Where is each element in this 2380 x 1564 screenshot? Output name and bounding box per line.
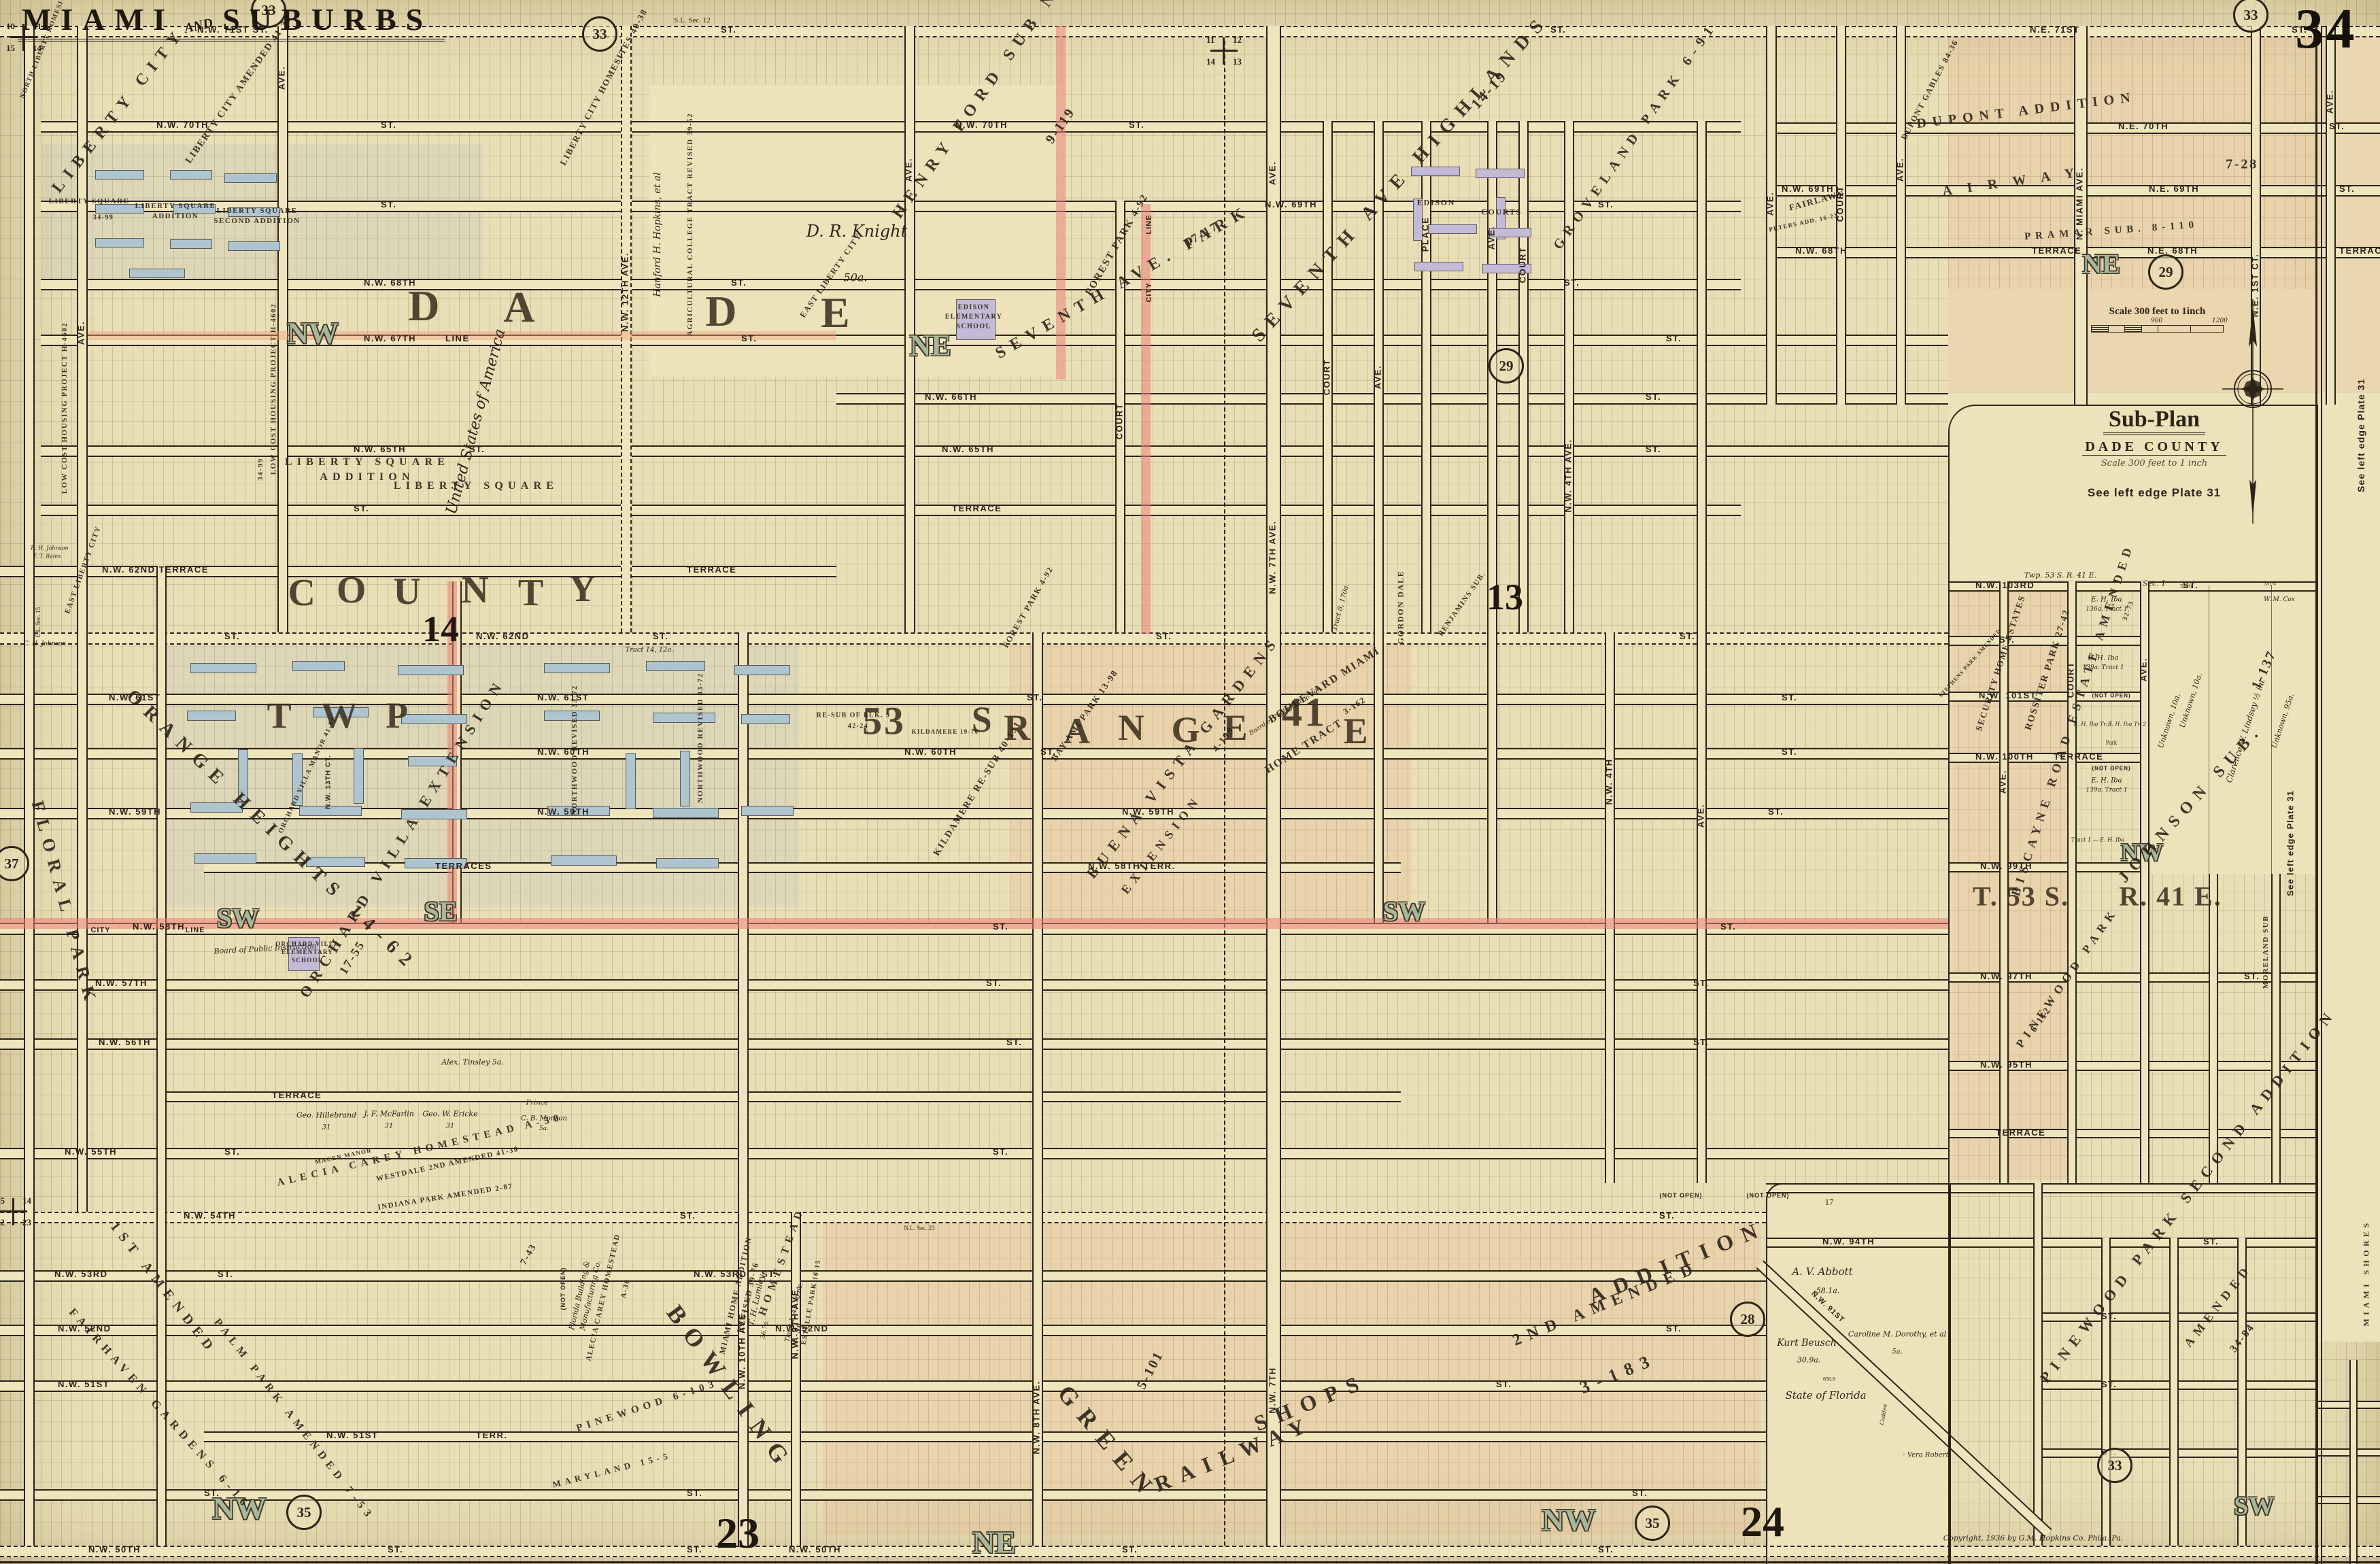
street-label: ST. <box>1564 277 1580 288</box>
street-label: ST. <box>1659 1210 1675 1221</box>
street <box>1605 632 1615 1183</box>
street-label: ST. <box>2101 1379 2117 1389</box>
street-label: TERRACE <box>1996 1127 2045 1138</box>
street <box>2315 1496 2380 1504</box>
section-letter: D <box>705 286 738 337</box>
subplan-county: DADE COUNTY <box>2082 439 2226 456</box>
street-label: ST. <box>731 277 747 288</box>
street-label: N.E. 71ST <box>2030 24 2079 35</box>
street-label: N.W. 61ST <box>537 692 589 702</box>
map-label: 30.9a. <box>1797 1356 1821 1365</box>
building-block <box>741 806 794 816</box>
map-label: J. F. McFarlin <box>364 1110 414 1119</box>
street <box>24 26 35 1546</box>
section-letter: 24 <box>1741 1497 1784 1547</box>
map-label: Hanford H. Hopkins, et al <box>652 172 663 296</box>
building-block <box>680 751 690 806</box>
street-label: N.W. 65TH <box>354 444 406 454</box>
building-block <box>170 239 212 249</box>
street-label: ST. <box>1782 692 1797 702</box>
street-label: ST. <box>721 24 736 35</box>
map-label: (NOT OPEN) <box>1747 1192 1790 1199</box>
street <box>1766 185 2380 197</box>
street-label: AVE. <box>1268 129 1278 218</box>
subplan-see-note: See left edge Plate 31 <box>2082 486 2226 500</box>
compass-rose-icon <box>2222 299 2283 527</box>
street-label: N.W. 51ST <box>326 1430 378 1440</box>
section-letter: NE <box>2082 248 2120 280</box>
map-label: ELEMENTARY <box>945 313 1003 321</box>
street <box>2349 1360 2358 1564</box>
street-label: AVE. <box>2139 626 2149 714</box>
map-label: 50a. <box>844 271 868 284</box>
sheet-border <box>2315 26 2317 1564</box>
street-label: COURT <box>1321 333 1331 422</box>
map-label: 17 <box>1825 1197 1834 1208</box>
section-letter: NE <box>972 1525 1016 1561</box>
section-letter: 23 <box>716 1508 760 1559</box>
map-label: CITY <box>1145 282 1153 302</box>
street-label: N.W. 103RD <box>1975 580 2035 590</box>
map-label: C. H. Johnson <box>24 641 66 647</box>
map-label: Park <box>2106 739 2118 746</box>
street-label: N.W. 70TH <box>156 120 209 130</box>
map-label: See left edge Plate 31 <box>2285 790 2296 896</box>
district-tint <box>1010 636 1411 921</box>
street-label: TERRACE <box>687 564 736 575</box>
street-label: N.W. 54TH <box>184 1210 236 1221</box>
map-label: Caroline M. Dorothy, et al <box>1848 1330 1946 1339</box>
section-letter: E <box>821 288 852 338</box>
street-label: ST. <box>354 503 369 513</box>
street-label: ST. <box>1646 392 1661 402</box>
map-label: Sec. 1 <box>2143 579 2166 588</box>
map-label: CITY <box>90 926 110 934</box>
map-label: 34-99 <box>256 458 265 480</box>
map-label: LIBERTY SQUARE <box>49 197 130 205</box>
map-label: E. H. Iba Tr. 2 <box>2107 721 2146 728</box>
map-label: 331¾ <box>2180 583 2192 590</box>
map-label: N.W. 13TH CT. <box>325 755 333 809</box>
section-letter: Y <box>568 567 598 611</box>
street <box>41 121 1741 133</box>
map-label: EDISON <box>958 304 990 311</box>
building-block <box>129 269 185 278</box>
street-label: ST. <box>741 333 757 343</box>
street-label: TERRACE <box>2339 245 2380 256</box>
plate-reference-circle: 29 <box>2148 254 2183 290</box>
street-label: ST. <box>1129 120 1144 130</box>
city-line <box>0 918 1948 929</box>
section-letter: T <box>267 694 294 736</box>
street-label: ST. <box>1782 747 1797 757</box>
street-label: N.W. 4TH AVE. <box>1563 432 1573 520</box>
plate-reference-circle: 33 <box>2097 1448 2132 1483</box>
map-label: MORELAND SUB <box>2262 915 2270 989</box>
building-block <box>354 748 364 804</box>
map-label: State of Florida <box>1785 1389 1866 1401</box>
street-label: ST. <box>653 631 668 641</box>
building-block <box>398 665 464 675</box>
title-miami: MIAMI <box>22 1 175 37</box>
building-block <box>224 173 277 183</box>
section-number: 23 <box>22 1217 31 1228</box>
street-label: N.W. 60TH <box>904 747 957 757</box>
street-label: ST. <box>2203 1236 2219 1246</box>
street-label: COURT <box>1114 377 1124 466</box>
map-label: · Vera Robert <box>1903 1452 1948 1459</box>
street-label: ST. <box>1693 1037 1709 1047</box>
street <box>41 445 1948 457</box>
map-label: Kurt Beusch <box>1777 1338 1837 1348</box>
section-letter: O <box>337 568 368 612</box>
street-label: ST. <box>381 199 396 209</box>
section-letter: N <box>1118 707 1146 749</box>
street <box>0 979 1948 991</box>
map-label: Twp. 53 S. R. 41 E. <box>2024 571 2096 580</box>
street-label: ST. <box>388 1544 403 1554</box>
map-label: 650.8 <box>1823 1376 1835 1382</box>
street-label: ST. <box>1680 631 1695 641</box>
street <box>2315 1448 2380 1457</box>
map-label: S.L. Sec. 12 <box>674 16 710 24</box>
building-block <box>1428 224 1477 234</box>
street-label: ST. <box>993 1146 1008 1157</box>
section-number: 12 <box>1233 35 1242 46</box>
building-block <box>551 855 617 866</box>
map-label: (NOT OPEN) <box>2092 693 2130 699</box>
street <box>2315 1401 2380 1409</box>
street-label: ST. <box>1156 631 1172 641</box>
street-label: ST. <box>1027 692 1042 702</box>
street-label: N.W. 51ST <box>58 1379 109 1389</box>
street <box>1896 26 1906 405</box>
map-label: Alex. Tinsley 5a. <box>441 1058 504 1067</box>
building-block <box>187 711 236 721</box>
map-label: Geo. W. Ericke <box>422 1110 477 1119</box>
map-label: RE-SUB OF BLK. 9 <box>817 712 891 719</box>
map-label: LINE <box>1145 214 1153 234</box>
street-label: AVE. <box>2324 58 2334 146</box>
street <box>0 1148 1948 1159</box>
street <box>836 393 1948 405</box>
street <box>0 632 1948 645</box>
street <box>0 1038 1948 1050</box>
street-label: ST. <box>1666 1323 1682 1333</box>
building-block <box>734 665 790 675</box>
map-label: NORTHWOOD REVISED 33-72 <box>696 673 704 803</box>
street-label: TERRACE <box>952 503 1002 513</box>
street <box>1697 121 1707 1183</box>
map-label: AGRICULTURAL COLLEGE TRACT REVISED 39-52 <box>686 113 694 337</box>
street <box>1224 41 1225 1546</box>
street-label: ST. <box>2339 184 2355 194</box>
plate-reference-circle: 29 <box>1489 348 1524 384</box>
map-label: SCHOOL <box>292 957 323 964</box>
map-label: COURTS <box>1481 207 1522 218</box>
map-label: See left edge Plate 31 <box>2356 378 2366 492</box>
street-label: N.W. 7TH AVE. <box>1268 513 1278 602</box>
street-label: N.W. 97TH <box>1980 971 2033 981</box>
section-letter: SW <box>1383 896 1425 928</box>
street-label: ST. <box>1666 333 1682 343</box>
street-label: N.E. 69TH <box>2149 184 2199 194</box>
map-label: 331¾ <box>2264 581 2276 587</box>
building-block <box>95 170 144 180</box>
section-letter: T <box>518 571 545 615</box>
plate-reference-circle: 35 <box>286 1495 322 1530</box>
street-label: ST. <box>1496 1379 1512 1389</box>
map-label: SECOND ADDITION <box>214 217 300 225</box>
building-block <box>401 714 467 724</box>
street <box>0 1212 1766 1223</box>
street-label: ST. <box>1720 921 1736 932</box>
street <box>1564 121 1574 632</box>
map-label: 139a. Tract 1 <box>2086 787 2127 794</box>
street-label: N.W. 62ND TERRACE <box>102 564 209 575</box>
section-letter: NW <box>287 316 339 351</box>
street-label: N.W. 8TH AVE. <box>1032 1374 1042 1462</box>
map-label: T. T. Bales <box>33 554 61 560</box>
section-number: 22 <box>0 1217 5 1228</box>
street-label: N.W. 50TH <box>88 1544 141 1554</box>
street-label: ST. <box>1693 978 1709 988</box>
section-number: 14 <box>1206 56 1215 67</box>
building-block <box>228 241 280 251</box>
street-label: N.W. 50TH <box>789 1544 841 1554</box>
map-label: LIBERTY SQUARE <box>217 207 298 215</box>
section-letter: N <box>461 568 490 612</box>
map-label: ADDITION <box>152 212 199 220</box>
street-label: N.E. 70TH <box>2118 121 2169 131</box>
building-block <box>190 663 256 673</box>
building-block <box>170 170 212 180</box>
section-letter: 13 <box>1486 576 1523 618</box>
street-label: N.W. 60TH <box>537 747 590 757</box>
building-block <box>292 661 345 671</box>
street-label: N.W. 66TH <box>925 392 977 402</box>
building-block <box>741 714 790 724</box>
map-label: N.L. Sec. 23 <box>904 1225 934 1231</box>
street <box>41 505 1741 516</box>
street-label: ST. <box>1006 1037 1022 1047</box>
map-label: A. V. Abbott <box>1792 1265 1852 1278</box>
map-label: Copyright, 1936 by G.M. Hopkins Co. Phil… <box>1943 1534 2124 1543</box>
street <box>1374 121 1384 923</box>
map-label: (NOT OPEN) <box>2092 766 2130 772</box>
street-label: N.W. 56TH <box>99 1037 151 1047</box>
section-letter: SW <box>2234 1491 2274 1521</box>
street-label: ST. <box>224 631 240 641</box>
street-label: N.W. 59TH <box>537 806 590 817</box>
section-number: 11 <box>1206 35 1214 46</box>
street <box>204 1431 1766 1442</box>
page-title: MIAMI AND SUBURBS <box>18 1 445 41</box>
title-and: AND <box>183 16 214 37</box>
section-letter: NW <box>1542 1502 1595 1538</box>
street-label: N.W. 94TH <box>1822 1236 1875 1246</box>
street-label: N.W. 58TH <box>133 921 185 932</box>
subplan-title: Sub-Plan <box>2103 407 2205 435</box>
map-label: 7-28 <box>2226 157 2258 173</box>
section-corner-marker: 11121413 <box>1202 29 1246 73</box>
street-label: ST. <box>993 921 1008 932</box>
building-block <box>646 661 705 671</box>
atlas-sheet: MIAMI AND SUBURBS 34 Scale 300 feet to 1… <box>0 0 2380 1564</box>
street-label: N.W. 95TH <box>1980 1059 2033 1070</box>
map-label: (NOT OPEN) <box>560 1268 566 1310</box>
section-letter: NE <box>909 328 951 363</box>
building-block <box>194 853 256 864</box>
street-label: N.W. 57TH <box>95 978 148 988</box>
street-label: AVE. <box>1372 333 1382 422</box>
section-number: 14 <box>22 1195 31 1206</box>
map-label: 5a. <box>1892 1348 1903 1356</box>
street <box>791 1212 801 1546</box>
section-number: 15 <box>0 1195 5 1206</box>
street-label: N.W. 62ND <box>476 631 530 641</box>
street-label: N.E. 68TH <box>2147 245 2198 256</box>
map-label: 31 <box>322 1124 331 1132</box>
subplan-scale-note: Scale 300 feet to 1 inch <box>2082 458 2226 469</box>
map-label: KILDAMERE 19-70 <box>912 728 979 735</box>
street-label: ST. <box>1646 444 1661 454</box>
street-label: COURT <box>1517 221 1527 309</box>
map-label: SCHOOL <box>956 323 991 330</box>
plate-reference-circle: 28 <box>1730 1302 1765 1337</box>
map-label: (NOT OPEN) <box>1660 1192 1703 1199</box>
street-label: ST. <box>687 1488 702 1498</box>
street-label: ST. <box>1632 1488 1648 1498</box>
street-label: TERR. <box>476 1430 508 1440</box>
map-label: EDISON <box>1417 198 1455 208</box>
map-label: Prince <box>526 1100 549 1107</box>
building-block <box>626 753 636 809</box>
street-label: N.W. 55TH <box>65 1146 117 1157</box>
building-block <box>653 808 719 818</box>
street-label: AVE. <box>76 289 86 377</box>
map-label: NORTHWOOD REVISED 33-72 <box>571 685 579 815</box>
street-label: AVE. <box>1998 738 2008 826</box>
section-number: 13 <box>1233 56 1242 67</box>
section-letter: D <box>408 281 441 331</box>
corner-cross-line <box>0 1210 27 1212</box>
section-letter: R. 41 E. <box>2119 881 2222 913</box>
section-number: 14 <box>33 43 41 54</box>
street-label: ST. <box>1768 806 1784 817</box>
street-label: N.W. 53RD <box>54 1269 108 1279</box>
building-block <box>653 713 715 723</box>
map-label: ELEMENTARY <box>282 949 333 955</box>
map-label: ORCHARD VILLA <box>275 940 339 947</box>
map-label: E. H. Iba <box>2091 777 2122 785</box>
map-label: GORDON DALE <box>1396 571 1406 645</box>
building-block <box>656 858 719 868</box>
map-label: LINE <box>185 926 205 934</box>
plate-reference-circle: 35 <box>1635 1506 1670 1541</box>
street-label: AVE. <box>1695 772 1705 860</box>
scale-bar-rule <box>2091 325 2224 333</box>
subplan-title-block: Sub-Plan DADE COUNTY Scale 300 feet to 1… <box>2082 407 2226 500</box>
map-label: LIBERTY SQUARE <box>394 480 558 492</box>
map-label: D. R. Knight <box>806 222 908 241</box>
section-corner-marker: 15142223 <box>0 1190 35 1234</box>
map-label: E. H. Johnson <box>31 545 68 551</box>
street-label: ST. <box>1598 199 1614 209</box>
map-label: E.L. Sec. 15 <box>35 607 41 637</box>
street-label: COURT <box>1835 160 1845 248</box>
street <box>1766 122 2380 134</box>
section-letter: P <box>386 694 410 736</box>
map-label: 31 <box>446 1123 455 1130</box>
street-label: ST. <box>381 120 396 130</box>
sheet-border <box>2321 26 2322 1564</box>
street-label: N.W. 65TH <box>942 444 994 454</box>
map-label: Tract 14, 12a. <box>625 647 673 654</box>
map-label: LOW COST HOUSING PROJECT H-4602 <box>269 303 277 475</box>
plate-number: 34 <box>2295 0 2357 62</box>
section-number: 15 <box>6 43 15 54</box>
map-label: W. M. Cox <box>2264 596 2295 603</box>
street <box>1266 26 1281 1546</box>
map-label: Geo. Hillebrand <box>296 1111 356 1120</box>
section-letter: 14 <box>422 608 459 650</box>
map-label: 42-24 <box>848 723 868 730</box>
sheet-border <box>0 1561 2380 1563</box>
building-block <box>95 238 144 248</box>
corner-cross-line <box>1210 50 1238 52</box>
map-label: LIBERTY SQUARE <box>285 456 449 469</box>
section-letter: A <box>503 282 537 333</box>
street-label: TERRACES <box>435 861 492 871</box>
scale-bar-label: Scale 300 feet to 1inch <box>2091 306 2224 318</box>
street-label: ST. <box>1122 1544 1138 1554</box>
street-label: AVE. <box>1765 160 1775 248</box>
section-number: 10 <box>6 21 15 32</box>
street-label: N.W. 67TH <box>364 333 416 343</box>
street-label: ST. <box>680 1210 696 1221</box>
street-label: N.W. 59TH <box>109 806 161 817</box>
plate-reference-circle: 33 <box>582 16 617 52</box>
scale-tick-900: 900 <box>2151 318 2162 324</box>
street-label: ST. <box>986 978 1002 988</box>
street-label: N.W. 4TH <box>1603 738 1614 826</box>
street-label: LINE <box>445 333 470 343</box>
street-label: ST. <box>2244 971 2260 981</box>
street-label: ST. <box>687 1544 702 1554</box>
street <box>0 1270 1766 1282</box>
street <box>0 1325 1766 1336</box>
building-block <box>544 663 610 673</box>
section-letter: U <box>393 570 422 613</box>
map-label: LOW COST HOUSING PROJECT H-4602 <box>61 322 69 494</box>
street-label: ST. <box>1598 1544 1614 1554</box>
section-letter: C <box>288 571 317 615</box>
street-label: AVE. <box>277 34 287 122</box>
map-label: Tract 1 — E. H. Iba <box>2071 837 2124 843</box>
title-suburbs: SUBURBS <box>222 1 432 37</box>
building-block <box>1476 169 1525 178</box>
street-label: TERRACE <box>272 1090 322 1100</box>
street-label: ST. <box>224 1146 240 1157</box>
map-label: E. H. Iba Tr. 1 <box>2073 721 2112 728</box>
street-label: ST. <box>204 1488 220 1498</box>
section-letter: 53 <box>862 698 906 744</box>
section-letter: SW <box>217 902 259 934</box>
scale-bar: Scale 300 feet to 1inch 900 1200 <box>2091 306 2224 333</box>
street-label: N.W. 68TH <box>364 277 416 288</box>
map-label: 31 <box>385 1123 394 1130</box>
